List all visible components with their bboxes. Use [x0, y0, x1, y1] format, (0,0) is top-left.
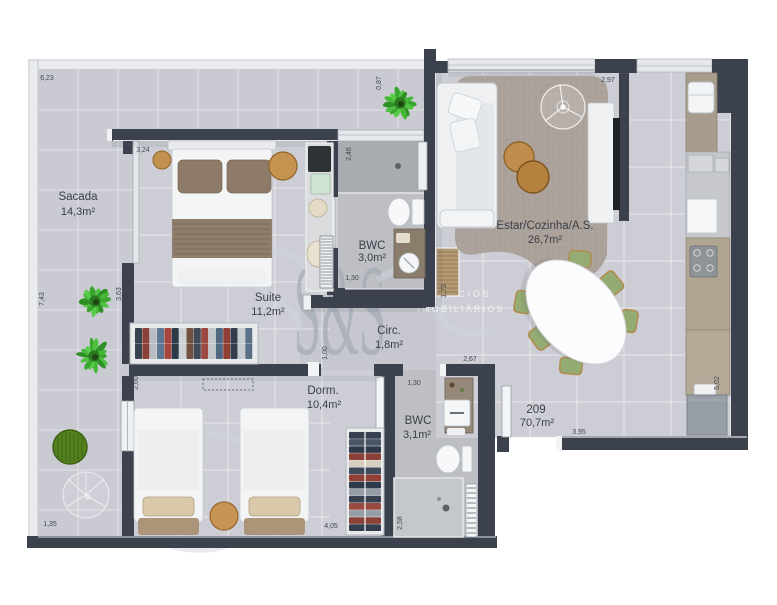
svg-text:26,7m²: 26,7m²: [528, 234, 563, 246]
svg-text:1,00: 1,00: [322, 346, 329, 360]
svg-text:10,4m²: 10,4m²: [307, 399, 342, 411]
svg-text:2,46: 2,46: [346, 147, 353, 161]
svg-text:1,30: 1,30: [345, 275, 359, 282]
svg-text:1,8m²: 1,8m²: [375, 339, 403, 351]
svg-text:5,02: 5,02: [714, 376, 721, 390]
svg-text:0,87: 0,87: [376, 76, 383, 90]
svg-text:3,63: 3,63: [116, 287, 123, 301]
svg-text:Circ.: Circ.: [377, 325, 401, 337]
svg-text:2,67: 2,67: [463, 356, 477, 363]
svg-text:Estar/Cozinha/A.S.: Estar/Cozinha/A.S.: [496, 220, 593, 232]
svg-text:Sacada: Sacada: [58, 191, 98, 203]
svg-text:3,95: 3,95: [572, 429, 586, 436]
svg-text:Suite: Suite: [255, 292, 281, 304]
svg-text:70,7m²: 70,7m²: [520, 417, 555, 429]
svg-text:209: 209: [526, 404, 545, 416]
svg-text:2,97: 2,97: [601, 77, 615, 84]
svg-text:11,2m²: 11,2m²: [251, 306, 285, 318]
svg-text:BWC: BWC: [359, 240, 386, 252]
svg-text:Dorm.: Dorm.: [307, 385, 338, 397]
svg-text:2,58: 2,58: [397, 516, 404, 530]
svg-text:4,05: 4,05: [324, 523, 338, 530]
svg-text:BWC: BWC: [405, 415, 432, 427]
svg-text:1,73: 1,73: [441, 284, 448, 298]
svg-text:6,23: 6,23: [40, 75, 54, 82]
svg-text:3,0m²: 3,0m²: [358, 252, 386, 264]
svg-text:3,24: 3,24: [136, 147, 150, 154]
svg-text:14,3m²: 14,3m²: [61, 206, 96, 218]
svg-text:1,35: 1,35: [43, 521, 57, 528]
svg-text:2,60: 2,60: [133, 376, 140, 390]
svg-text:3,1m²: 3,1m²: [403, 429, 431, 441]
svg-text:7,43: 7,43: [39, 292, 46, 306]
svg-text:1,30: 1,30: [407, 380, 421, 387]
